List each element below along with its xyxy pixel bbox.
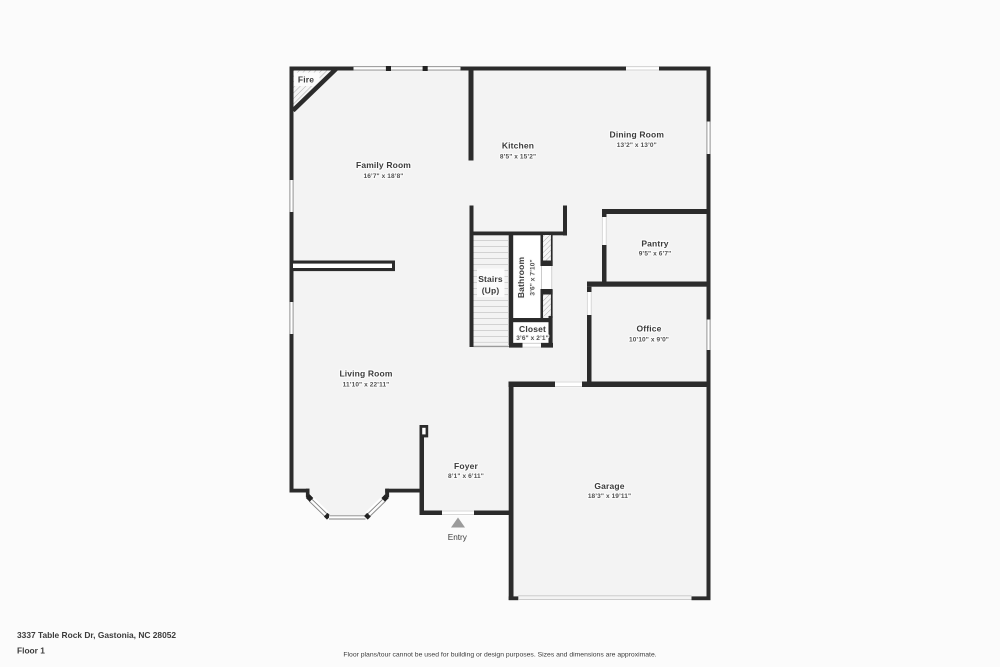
svg-text:Closet: Closet <box>519 324 546 334</box>
svg-text:18’3" x 19’11": 18’3" x 19’11" <box>588 493 631 500</box>
svg-text:Fire: Fire <box>298 75 314 85</box>
svg-text:Foyer: Foyer <box>454 461 478 471</box>
svg-text:Stairs: Stairs <box>478 274 503 284</box>
svg-text:(Up): (Up) <box>482 286 500 296</box>
svg-text:Kitchen: Kitchen <box>502 141 534 151</box>
svg-text:11’10" x 22’11": 11’10" x 22’11" <box>343 382 390 389</box>
svg-text:10’10" x 9’0": 10’10" x 9’0" <box>629 337 669 344</box>
svg-text:3’6" x 7’10": 3’6" x 7’10" <box>530 259 537 295</box>
svg-text:Family Room: Family Room <box>356 160 411 170</box>
svg-text:Office: Office <box>637 324 662 334</box>
svg-text:8’1" x 6’11": 8’1" x 6’11" <box>448 473 484 480</box>
svg-text:Living Room: Living Room <box>339 369 392 379</box>
svg-text:Floor 1: Floor 1 <box>17 646 45 656</box>
svg-text:13’2" x 13’0": 13’2" x 13’0" <box>617 142 657 149</box>
svg-text:3337 Table Rock Dr, Gastonia,: 3337 Table Rock Dr, Gastonia, NC 28052 <box>17 630 176 640</box>
svg-text:Floor plans/tour cannot be use: Floor plans/tour cannot be used for buil… <box>343 652 656 659</box>
svg-text:Garage: Garage <box>594 481 624 491</box>
svg-text:16’7" x 18’8": 16’7" x 18’8" <box>364 173 404 180</box>
svg-text:Dining Room: Dining Room <box>610 130 665 140</box>
svg-text:9’5" x 6’7": 9’5" x 6’7" <box>639 251 672 258</box>
svg-text:Entry: Entry <box>448 533 468 542</box>
svg-text:Pantry: Pantry <box>641 239 668 249</box>
svg-text:Bathroom: Bathroom <box>516 257 526 299</box>
svg-text:3’6" x 2’1": 3’6" x 2’1" <box>516 335 549 342</box>
svg-text:8’5" x 15’2": 8’5" x 15’2" <box>500 154 536 161</box>
